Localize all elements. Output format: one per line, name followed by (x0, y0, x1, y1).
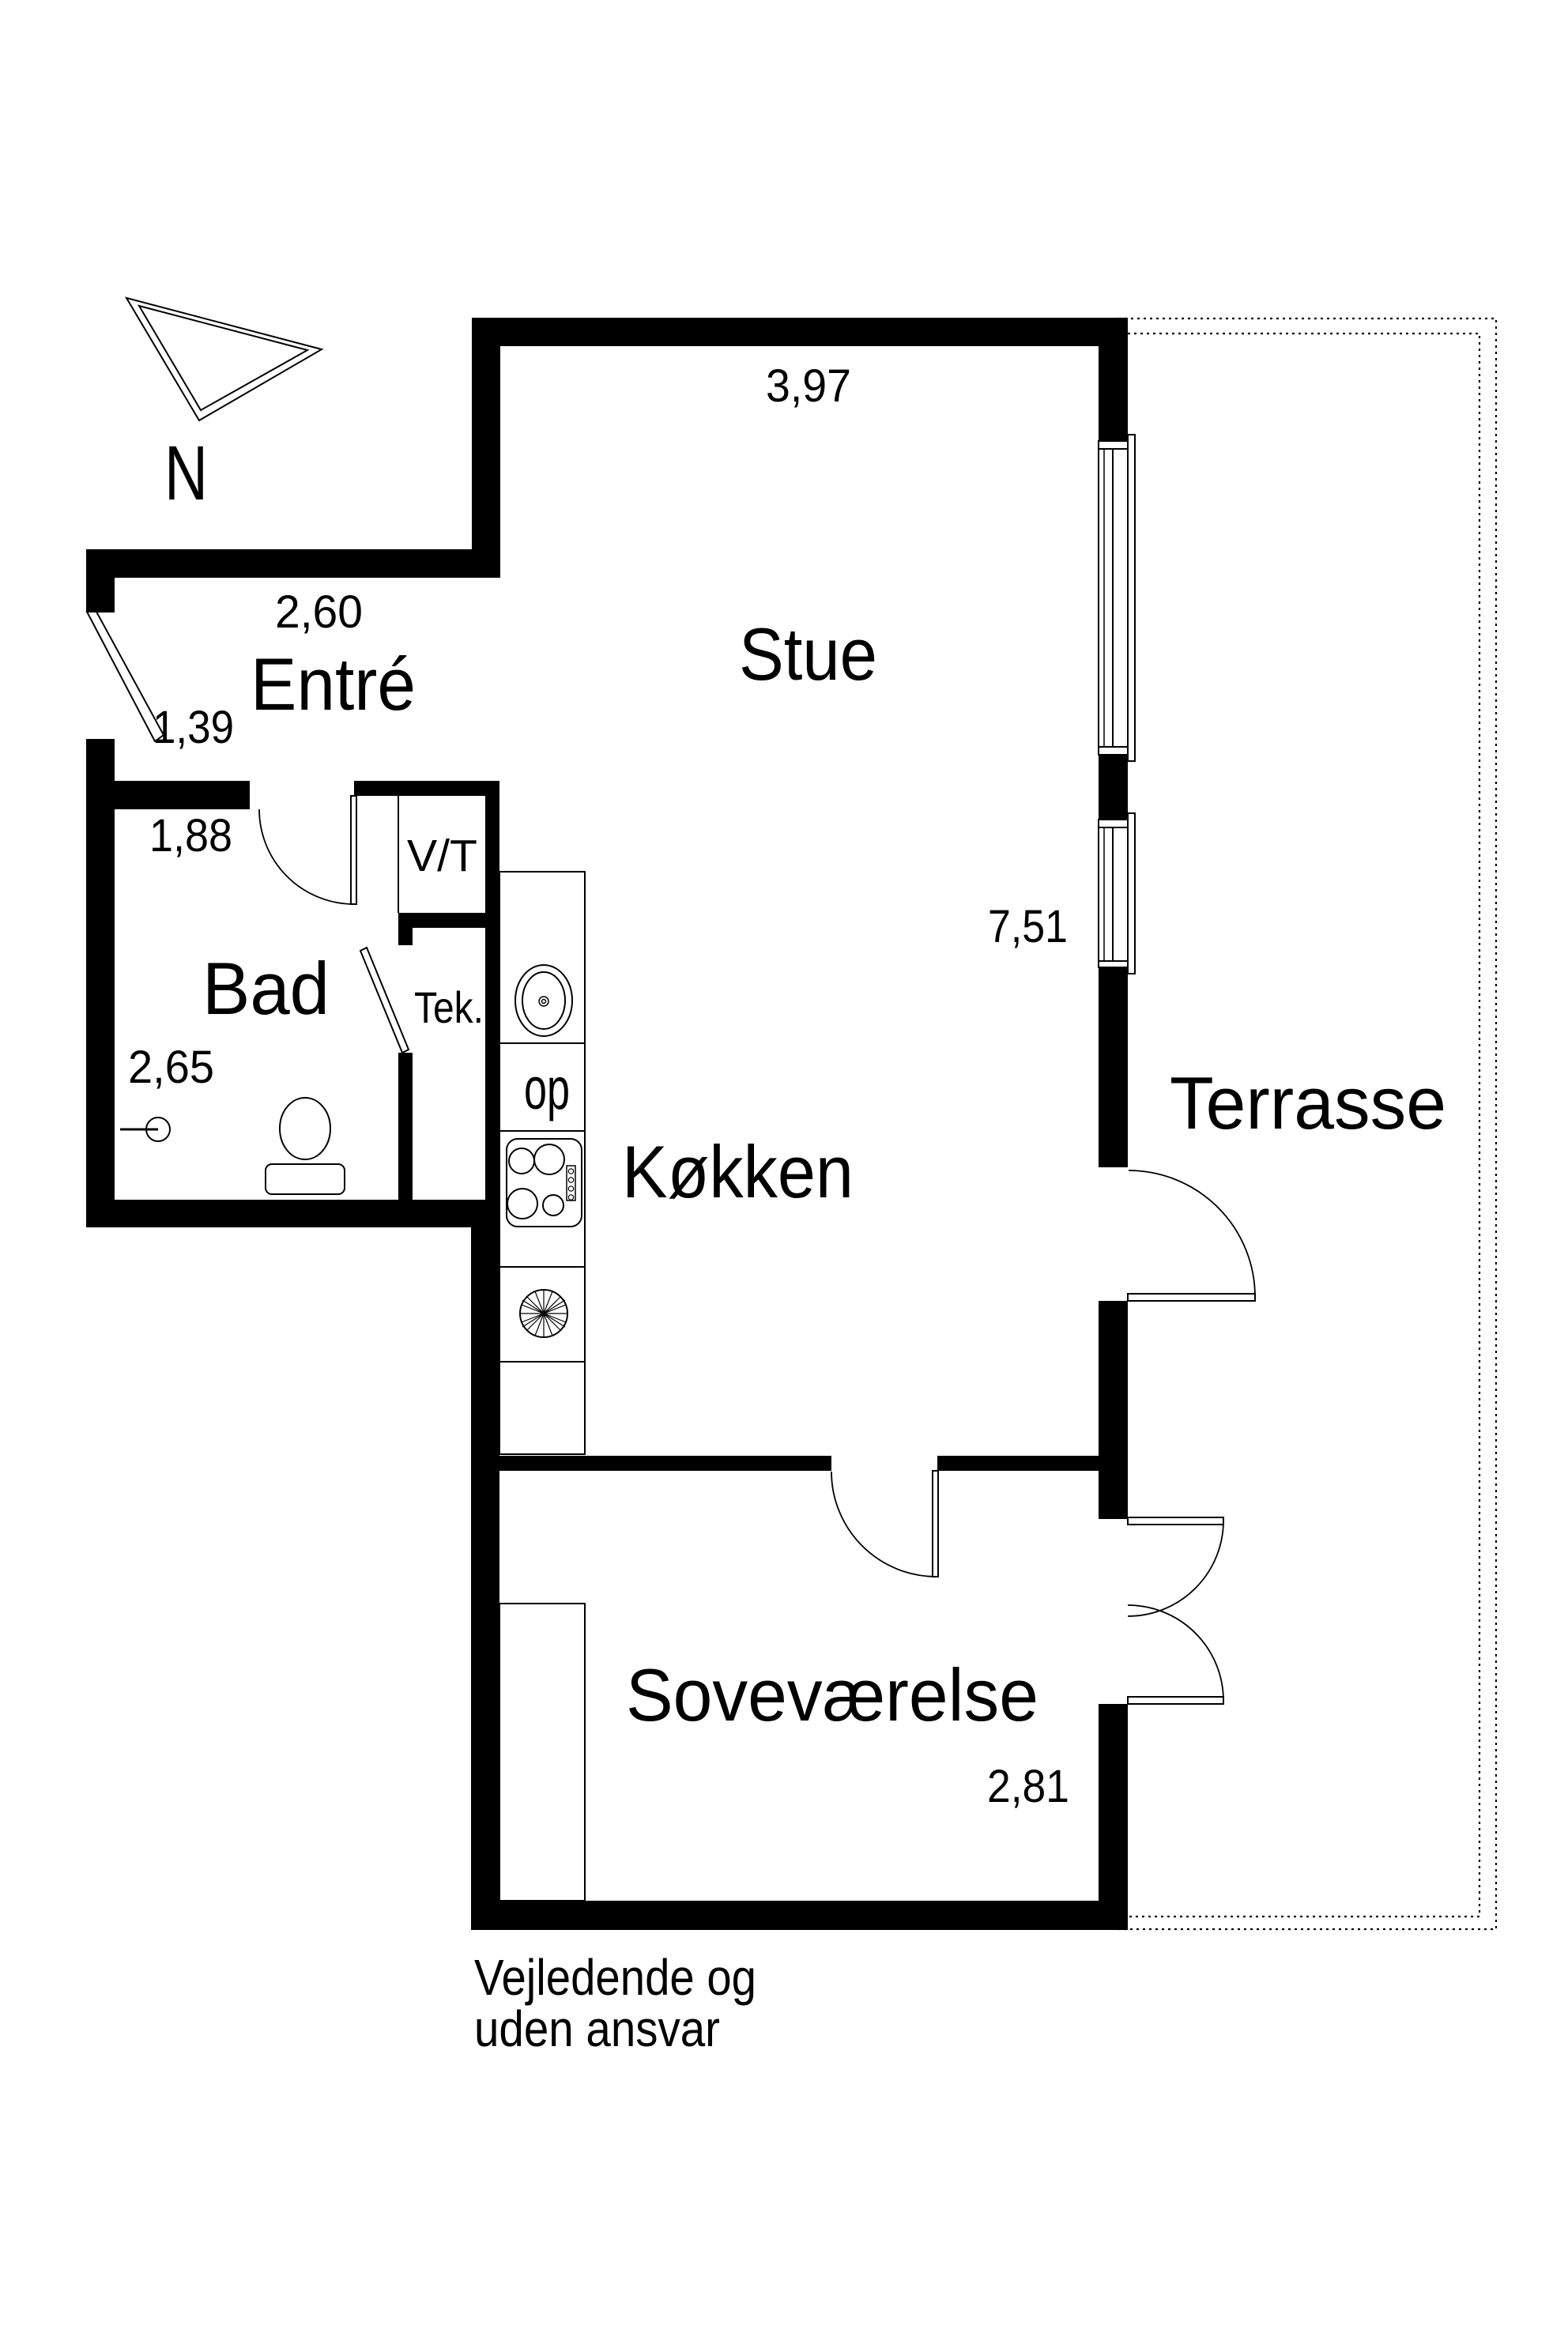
svg-text:Stue: Stue (739, 612, 877, 695)
svg-text:2,60: 2,60 (275, 586, 363, 638)
svg-text:op: op (524, 1056, 570, 1121)
svg-text:uden ansvar: uden ansvar (474, 2000, 720, 2057)
svg-text:V/T: V/T (407, 831, 477, 881)
svg-text:Entré: Entré (251, 643, 416, 726)
svg-text:2,65: 2,65 (128, 1042, 214, 1093)
svg-text:Køkken: Køkken (622, 1130, 854, 1213)
svg-text:Bad: Bad (202, 947, 330, 1030)
svg-text:1,88: 1,88 (149, 810, 232, 861)
svg-text:Soveværelse: Soveværelse (626, 1653, 1038, 1736)
svg-text:7,51: 7,51 (988, 901, 1068, 952)
svg-text:2,81: 2,81 (987, 1761, 1069, 1812)
svg-text:Terrasse: Terrasse (1170, 1061, 1446, 1144)
svg-text:3,97: 3,97 (766, 360, 851, 412)
svg-text:Vejledende og: Vejledende og (474, 1949, 756, 2006)
svg-text:N: N (164, 430, 208, 516)
svg-text:1,39: 1,39 (153, 702, 234, 753)
svg-text:Tek.: Tek. (414, 982, 484, 1032)
